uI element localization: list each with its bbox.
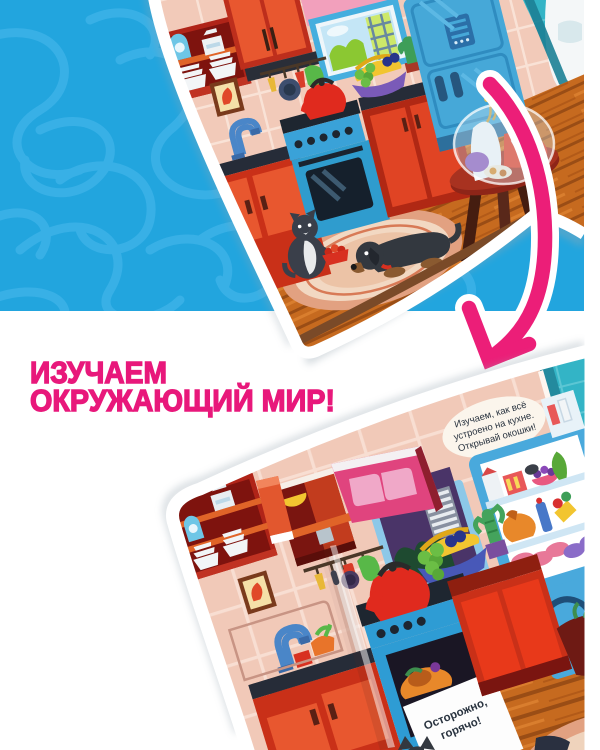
svg-text:ОКРУЖАЮЩИЙ МИР!: ОКРУЖАЮЩИЙ МИР! [30, 382, 335, 418]
